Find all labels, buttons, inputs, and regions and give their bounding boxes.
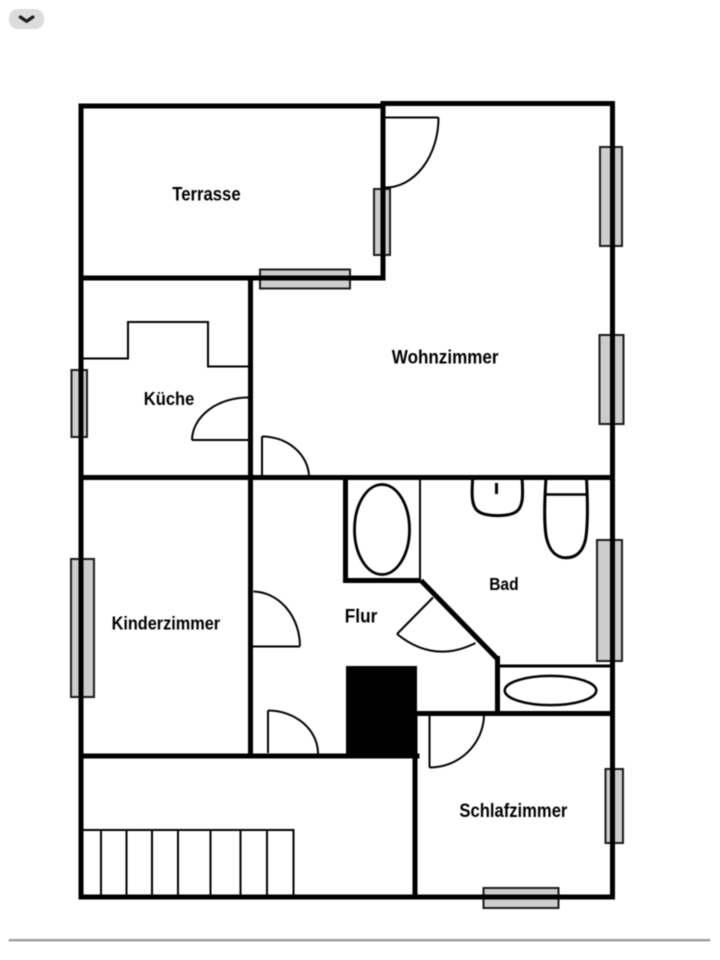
svg-text:Flur: Flur bbox=[345, 606, 378, 627]
svg-text:Schlafzimmer: Schlafzimmer bbox=[459, 801, 567, 822]
svg-text:Wohnzimmer: Wohnzimmer bbox=[392, 346, 499, 368]
svg-text:Bad: Bad bbox=[489, 574, 518, 594]
svg-text:Kinderzimmer: Kinderzimmer bbox=[112, 613, 221, 634]
svg-text:Küche: Küche bbox=[144, 388, 195, 409]
svg-text:Terrasse: Terrasse bbox=[172, 183, 240, 205]
